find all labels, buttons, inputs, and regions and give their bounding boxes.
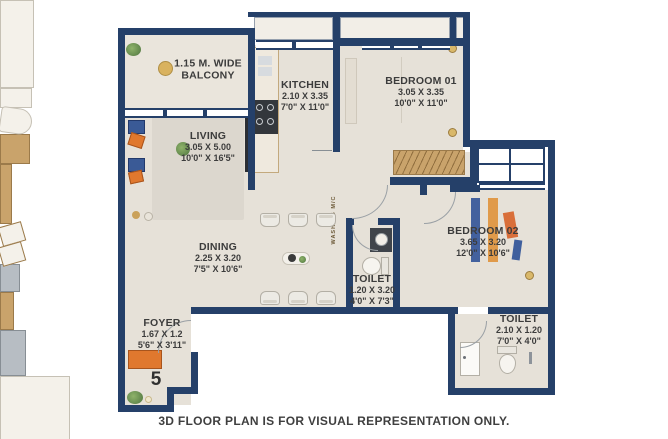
burner (267, 118, 274, 125)
dining-chair-icon (260, 291, 280, 305)
lamp-icon (525, 271, 534, 280)
burner (267, 104, 274, 111)
dining-chair-icon (316, 291, 336, 305)
duct (340, 17, 450, 40)
sink-basin (258, 67, 272, 76)
bed-icon (0, 376, 70, 439)
tv-console-icon (0, 164, 12, 224)
balcony-table-icon (158, 61, 173, 76)
floor-plan: WASHING M/C (0, 0, 668, 439)
wall-segment (463, 12, 470, 147)
wall-segment (191, 307, 458, 314)
bay-window-sill (479, 163, 543, 165)
bedroom01-label: BEDROOM 01 3.05 X 3.35 10'0" X 11'0" (385, 75, 456, 109)
foyer-label: FOYER 1.67 X 1.2 5'6" X 3'11" (138, 317, 186, 351)
dining-chair-icon (316, 213, 336, 227)
disclaimer-text: 3D FLOOR PLAN IS FOR VISUAL REPRESENTATI… (0, 414, 668, 428)
duct (254, 17, 333, 40)
balcony-label: 1.15 M. WIDE BALCONY (174, 58, 242, 83)
wall-segment (450, 185, 480, 192)
wall-segment (118, 405, 174, 412)
lamp-icon (448, 128, 457, 137)
coffee-table-icon (0, 134, 30, 164)
fridge-line (312, 150, 332, 151)
window-bedroom02-inner (479, 183, 545, 190)
decor-icon (288, 254, 296, 262)
burner (256, 118, 263, 125)
kitchen-sink-icon (0, 264, 20, 292)
wall-segment (466, 140, 555, 147)
kitchen-label: KITCHEN 2.10 X 3.35 7'0" X 11'0" (281, 79, 329, 113)
toilet-common-label: TOILET 1.20 X 3.20 4'0" X 7'3" (349, 273, 395, 307)
wall-segment (448, 388, 555, 395)
wall-segment (448, 314, 455, 395)
dresser-icon (345, 58, 357, 124)
unit-number: 5 (151, 369, 162, 391)
side-table-icon (0, 88, 32, 108)
sink-basin (258, 56, 272, 65)
wall-segment (118, 28, 255, 35)
tap-icon (529, 352, 532, 364)
dining-chair-icon (288, 291, 308, 305)
sofa-icon (0, 0, 34, 88)
armchair-icon (0, 106, 34, 136)
decor-icon (144, 212, 153, 221)
window-post (292, 40, 296, 50)
wall-segment (191, 352, 198, 394)
window-post (163, 108, 167, 118)
bay-window-bedroom02 (477, 147, 545, 183)
dining-label: DINING 2.25 X 3.20 7'5" X 10'6" (194, 241, 243, 275)
wc-tank (497, 346, 517, 354)
living-label: LIVING 3.05 X 5.00 10'0" X 16'5" (181, 130, 235, 164)
wall-segment (346, 218, 354, 225)
wall-segment (333, 12, 340, 152)
fridge-icon (0, 330, 26, 376)
rug (152, 112, 244, 220)
window-post (509, 149, 511, 181)
bedroom02-label: BEDROOM 02 3.65 X 3.20 12'0" X 10'6" (447, 225, 518, 259)
decor-icon (132, 211, 140, 219)
wall-segment (390, 177, 477, 185)
door-knob (463, 356, 466, 359)
wardrobe-icon (393, 150, 465, 175)
wall-segment (248, 28, 255, 190)
dining-chair-icon (288, 213, 308, 227)
toilet-attached-label: TOILET 2.10 X 1.20 7'0" X 4'0" (496, 313, 542, 347)
window-living-balcony (125, 108, 248, 118)
dining-chair-icon (260, 213, 280, 227)
wall-segment (248, 12, 470, 17)
window-post (203, 108, 207, 118)
plant-icon (126, 43, 141, 56)
shoe-bench-icon (128, 350, 162, 369)
wall-segment (340, 38, 470, 46)
plant-icon (299, 256, 306, 263)
kitchen-cabinet-icon (0, 292, 14, 330)
balcony-chair-icon (0, 241, 26, 267)
wall-segment (548, 140, 555, 395)
burner (256, 104, 263, 111)
plant-icon (127, 391, 143, 404)
wall-segment (118, 28, 125, 412)
candle-icon (145, 396, 152, 403)
